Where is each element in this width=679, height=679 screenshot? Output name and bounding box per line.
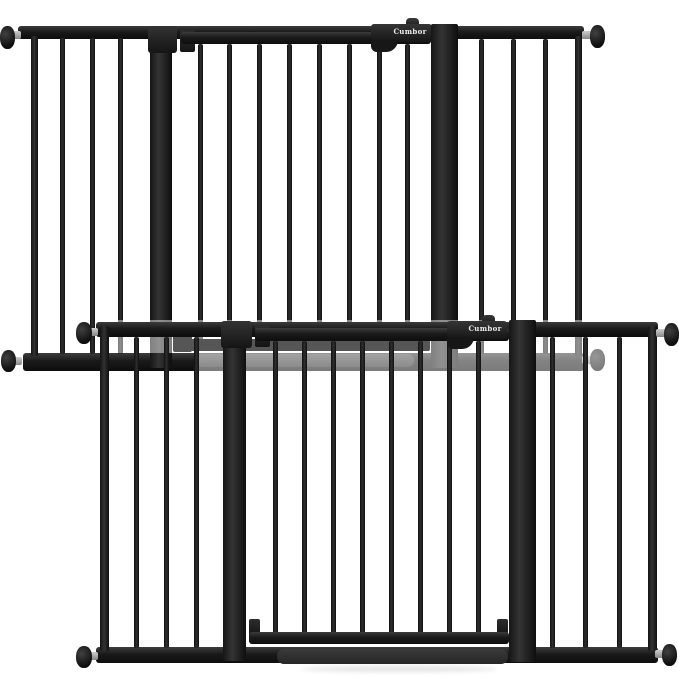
top-gate-left-frame-bar (31, 36, 38, 356)
bottom-gate-right-frame-bar (648, 326, 657, 651)
gate-bar (227, 44, 232, 340)
gate-bar (198, 44, 203, 340)
gate-bar (287, 44, 292, 340)
top-gate-hinge-bracket (148, 26, 177, 53)
product-photo: Cumbor (0, 0, 679, 679)
gate-bar (118, 38, 123, 354)
latch-handle-grip (371, 40, 398, 52)
gate-bar (479, 39, 484, 354)
gate-bar (476, 341, 481, 634)
pressure-bolt-knob (0, 26, 15, 49)
gate-bar (447, 341, 452, 634)
gate-bar (257, 44, 262, 340)
top-gate-latch-post (431, 24, 458, 368)
brand-label: Cumbor (389, 27, 431, 36)
gate-bar (317, 44, 322, 340)
bottom-gate-door-bottom-rail (249, 632, 509, 644)
floor-shadow (302, 666, 497, 672)
gate-bar (550, 337, 555, 648)
gate-bar (273, 341, 278, 634)
gate-bar (302, 341, 307, 634)
top-gate-right-frame-bar (575, 36, 582, 356)
gate-bar (60, 38, 65, 354)
bottom-gate-hinge-post (223, 324, 246, 661)
gate-bar (511, 39, 516, 354)
gate-bar (331, 341, 336, 634)
gate-bar (134, 337, 139, 648)
bottom-gate-left-frame-bar (100, 326, 109, 651)
pressure-bolt-knob (590, 25, 605, 48)
door-threshold-plate (277, 649, 508, 664)
gate-bar (194, 337, 199, 648)
gate-bar (583, 337, 588, 648)
brand-label: Cumbor (464, 324, 506, 333)
gate-bar (347, 44, 352, 340)
gate-bar (360, 341, 365, 634)
gate-bar (389, 341, 394, 634)
pressure-bolt-knob (76, 646, 92, 668)
bottom-gate-hinge-bracket (221, 321, 252, 348)
gate-bar (405, 44, 410, 340)
gate-bar (418, 341, 423, 634)
pressure-bolt-knob (664, 323, 679, 346)
gate-bar (543, 39, 548, 354)
gate-bar (164, 337, 169, 648)
bottom-gate-latch-post (509, 320, 536, 662)
gate-bar (90, 38, 95, 354)
pressure-bolt-knob (1, 350, 16, 372)
pressure-bolt-knob (662, 644, 677, 666)
gate-bar (377, 44, 382, 340)
gate-bar (617, 337, 622, 648)
top-gate-hinge-post (150, 28, 172, 368)
pressure-bolt-knob (76, 322, 92, 344)
